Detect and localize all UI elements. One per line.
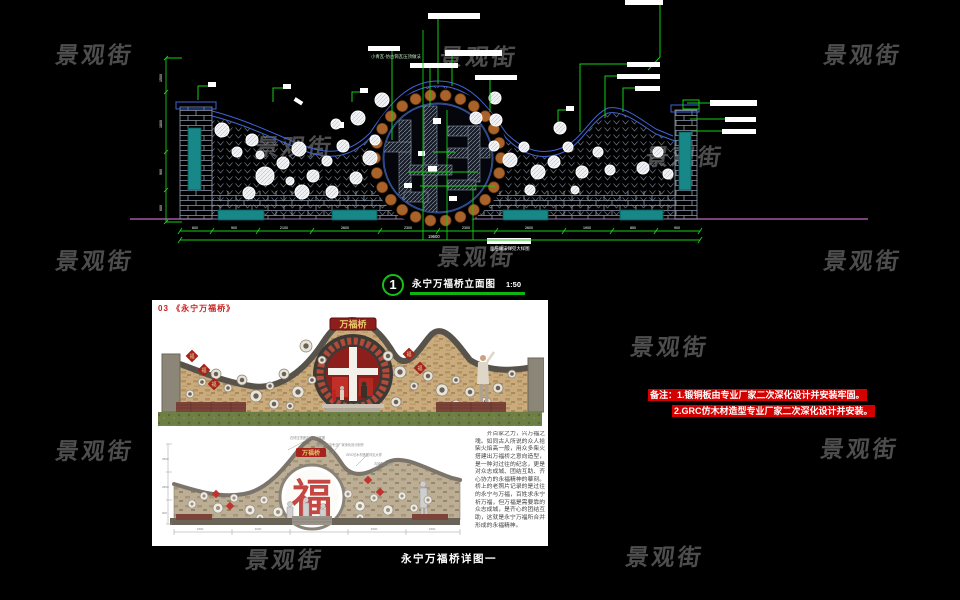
drawing-title: 永宁万福桥立面图	[412, 276, 496, 290]
annotation-bottom: 面层做法详见大样图	[490, 245, 530, 252]
plate-motif	[439, 387, 444, 392]
scallop-tile	[468, 101, 479, 112]
note-line-2: 2.GRC仿木材造型专业厂家二次深化设计并安装。	[672, 405, 875, 417]
render-photo: 万福桥 福福福福福	[156, 316, 544, 428]
scallop-tile	[455, 94, 466, 105]
decor-plate	[370, 135, 380, 145]
plate-motif	[240, 378, 245, 383]
drawing-title-block: 1 永宁万福桥立面图 1:50	[382, 274, 525, 296]
plate-motif	[454, 378, 458, 382]
cad-sheet: { "watermark": {"text": "景观街"}, "cad": {…	[0, 0, 960, 600]
plate-motif	[248, 508, 252, 512]
decor-plate	[292, 142, 306, 156]
scallop-tile	[440, 90, 451, 101]
decor-plate	[548, 156, 560, 168]
detail-dim: 2800	[162, 485, 169, 489]
decor-plate	[593, 147, 603, 157]
dim-label: 2300	[462, 226, 470, 230]
detail-number-bubble: 1	[382, 274, 404, 296]
plate-motif	[372, 496, 375, 499]
decor-plate	[246, 134, 258, 146]
scallop-tile	[377, 123, 388, 134]
pillar-inset	[188, 128, 201, 190]
watermark-text: 景观街	[629, 328, 712, 362]
detail-annotation: 锻铜浮雕由专业厂家深化设计制作	[316, 442, 365, 447]
plate-motif	[188, 392, 192, 396]
render-panel: 03 《永宁万福桥》	[152, 300, 548, 546]
scallop-tile	[425, 215, 436, 226]
plate-motif	[288, 404, 292, 408]
scallop-tile	[397, 204, 408, 215]
decor-plate	[525, 185, 535, 195]
plate-motif	[412, 506, 415, 509]
bench	[503, 210, 548, 220]
plate-motif	[262, 498, 265, 501]
plate-motif	[412, 384, 416, 388]
decor-plate	[326, 186, 338, 198]
grass-strip	[158, 412, 542, 426]
dim-label: 1500	[159, 74, 163, 82]
scallop-tile	[397, 101, 408, 112]
plate-motif	[397, 369, 402, 374]
watermark-text: 景观街	[819, 430, 902, 464]
plate-motif	[202, 494, 205, 497]
scallop-tile	[468, 204, 479, 215]
scallop-tile	[480, 194, 491, 205]
plate-motif	[510, 372, 514, 376]
render-right-pillar	[528, 358, 544, 412]
plate-motif	[303, 343, 308, 348]
render-detail: 福 万福桥 石材压顶做法详见大样图锻铜浮雕由专业厂家深化	[160, 432, 472, 542]
plate-motif	[346, 492, 349, 495]
plate-motif	[276, 510, 280, 514]
decor-plate	[490, 114, 502, 126]
scallop-tile	[377, 182, 388, 193]
decor-plate	[375, 93, 389, 107]
decor-plate	[489, 141, 499, 151]
plate-motif	[320, 358, 324, 362]
decor-plate	[637, 162, 649, 174]
decor-plate	[322, 156, 332, 166]
detail-dim: 900	[162, 511, 167, 515]
dim-label: 2600	[525, 226, 533, 230]
scallop-tile	[488, 182, 499, 193]
decor-plate	[470, 112, 482, 124]
fu-char: 福	[201, 367, 206, 374]
scallop-tile	[410, 94, 421, 105]
dim-label: 900	[674, 226, 680, 230]
decor-plate	[571, 186, 579, 194]
plate-motif	[358, 504, 362, 508]
detail-plaque: 万福桥	[301, 449, 321, 457]
scallop-tile	[494, 168, 505, 179]
decor-plate	[351, 111, 365, 125]
title-underline: 永宁万福桥立面图 1:50	[410, 276, 525, 295]
dim-label: 600	[159, 205, 163, 211]
description-paragraph: 齐百家之力，兴万福之魂。如同古人所说的众人拾柴火焰高一般，用众多柴火搭建出万福桥…	[475, 431, 545, 543]
detail-dim: 4800	[313, 527, 320, 531]
plate-motif	[272, 402, 277, 407]
bench	[218, 210, 264, 220]
watermark-text: 景观街	[624, 538, 707, 572]
decor-plate	[519, 142, 529, 152]
plate-motif	[253, 393, 258, 398]
detail-dim: 1800	[429, 527, 436, 531]
fu-char: 福	[189, 353, 194, 360]
dim-label: 2300	[404, 226, 412, 230]
scallop-tile	[440, 215, 451, 226]
plate-motif	[226, 386, 230, 390]
annotation-top: 小青瓦-仿古筒瓦压顶做法	[371, 53, 421, 60]
detail-dim: 3600	[371, 527, 378, 531]
dim-label: 850	[630, 226, 636, 230]
drawing-scale: 1:50	[506, 280, 521, 289]
decor-plate	[605, 165, 615, 175]
decor-plate	[489, 92, 501, 104]
decor-plate	[503, 153, 517, 167]
decor-plate	[307, 170, 319, 182]
detail-annotation: 石材压顶做法详见大样图	[290, 435, 325, 440]
plate-motif	[310, 378, 314, 382]
dim-label: 1800	[159, 120, 163, 128]
decor-plate	[286, 177, 294, 185]
decor-plate	[350, 172, 362, 184]
decor-plate	[232, 147, 242, 157]
decor-plate	[363, 151, 377, 165]
scallop-tile	[385, 194, 396, 205]
scallop-tile	[371, 168, 382, 179]
plate-motif	[214, 372, 219, 377]
decor-plate	[215, 123, 229, 137]
plate-motif	[216, 506, 220, 510]
plate-motif	[426, 374, 431, 379]
decor-plate	[337, 140, 349, 152]
decor-plate	[243, 187, 255, 199]
plate-motif	[386, 508, 390, 512]
plate-motif	[190, 502, 193, 505]
dim-label: 900	[231, 226, 237, 230]
scallop-tile	[410, 211, 421, 222]
dim-label: 2600	[341, 226, 349, 230]
bench	[332, 210, 377, 220]
decor-plate	[563, 142, 573, 152]
plate-motif	[232, 496, 235, 499]
bench	[620, 210, 663, 220]
cad-elevation-drawing: 小青瓦-仿古筒瓦压顶做法 面层做法详见大样图 60090021002600230…	[120, 0, 890, 275]
plate-motif	[295, 389, 300, 394]
plate-motif	[394, 400, 399, 405]
plate-motif	[200, 380, 204, 384]
decor-plate	[576, 166, 588, 178]
scallop-tile	[385, 111, 396, 122]
plate-motif	[426, 498, 429, 501]
decor-plate	[256, 167, 274, 185]
detail-dim: 1800	[197, 527, 204, 531]
dim-label: 2100	[280, 226, 288, 230]
pillar-inset	[679, 132, 691, 190]
decor-plate	[277, 157, 289, 169]
fu-char: 福	[417, 365, 422, 372]
dim-overall-label: 19600	[428, 234, 440, 239]
decor-plate	[331, 119, 341, 129]
decor-plate	[531, 165, 545, 179]
plate-motif	[282, 372, 287, 377]
plate-motif	[468, 390, 473, 395]
decor-plate	[295, 185, 309, 199]
plate-motif	[496, 386, 501, 391]
render-panel-title: 03 《永宁万福桥》	[158, 303, 235, 314]
dim-label: 600	[192, 226, 198, 230]
plate-motif	[268, 384, 272, 388]
fu-char: 福	[211, 381, 216, 388]
scallop-tile	[455, 211, 466, 222]
gate-plaque: 万福桥	[338, 319, 367, 330]
watermark-text: 景观街	[244, 541, 327, 575]
notes-block: 备注：1.锻铜板由专业厂家二次深化设计并安装牢固。 2.GRC仿木材造型专业厂家…	[648, 389, 875, 421]
dim-label: 900	[159, 169, 163, 175]
sheet-caption: 永宁万福桥详图一	[401, 551, 497, 566]
decor-plate	[554, 122, 566, 134]
decor-plate	[653, 147, 663, 157]
detail-dim: 3500	[162, 457, 169, 461]
watermark-text: 景观街	[54, 432, 137, 466]
note-line-1: 备注：1.锻铜板由专业厂家二次深化设计并安装牢固。	[648, 389, 875, 401]
dim-label: 1900	[583, 226, 591, 230]
plate-motif	[400, 494, 403, 497]
detail-dim: 3600	[255, 527, 262, 531]
plate-motif	[386, 354, 391, 359]
decor-plate	[256, 151, 264, 159]
decor-plate	[663, 169, 673, 179]
detail-annotation: GRC仿木材造型详见大样	[346, 452, 383, 457]
detail-annotation: 青砖贴面做法	[374, 461, 393, 466]
fu-char: 福	[406, 351, 411, 358]
